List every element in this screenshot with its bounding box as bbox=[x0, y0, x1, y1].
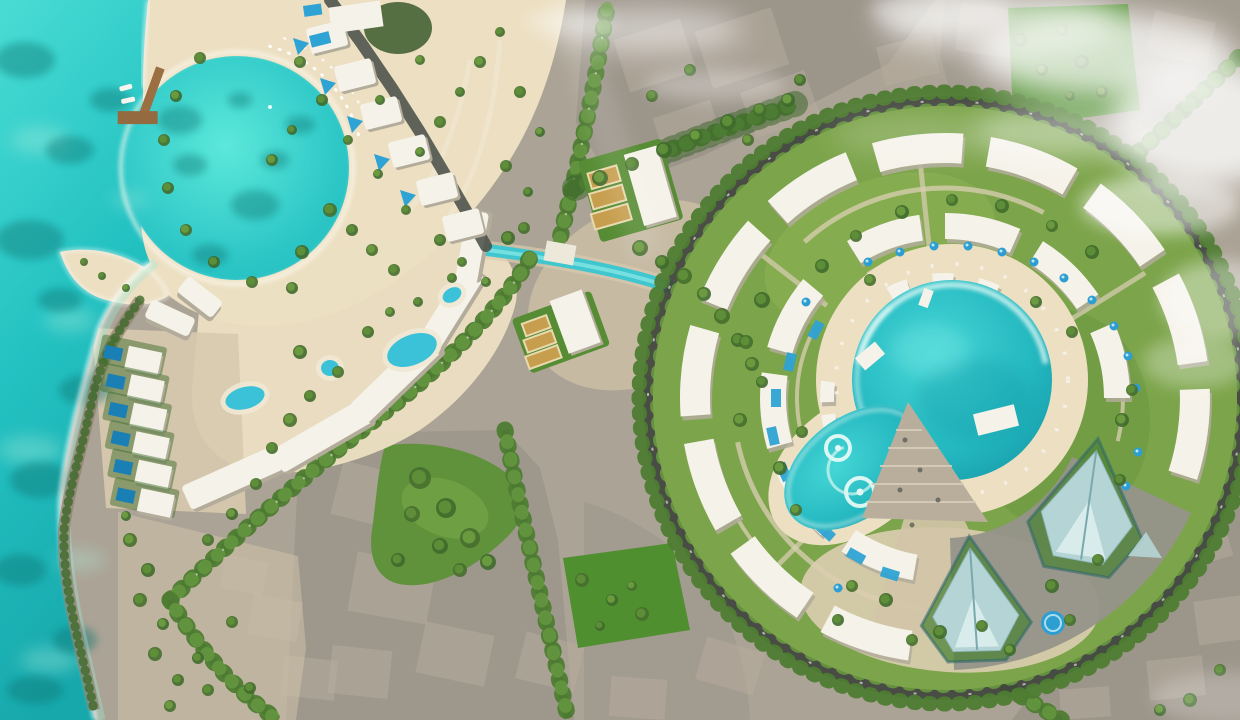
plot-patch bbox=[609, 676, 668, 720]
tree-crown bbox=[363, 327, 371, 335]
pier-platform bbox=[118, 111, 158, 124]
tree-crown bbox=[1115, 475, 1123, 483]
tree-crown bbox=[865, 275, 873, 283]
tree-crown bbox=[389, 265, 397, 273]
tree-crown bbox=[251, 479, 259, 487]
arc-building bbox=[1102, 328, 1117, 398]
tree-crown bbox=[247, 277, 255, 285]
tree-crown bbox=[193, 653, 201, 661]
tree-crown bbox=[181, 225, 189, 233]
umbrella-top bbox=[866, 260, 869, 263]
tree-crown bbox=[435, 117, 443, 125]
tree-crown bbox=[165, 701, 173, 709]
tree-crown bbox=[288, 126, 295, 133]
shallow-water-streak bbox=[44, 308, 96, 332]
tree-crown bbox=[294, 346, 303, 355]
tree-crown bbox=[454, 564, 463, 573]
tree-crown bbox=[1005, 645, 1013, 653]
tree-crown bbox=[1215, 665, 1223, 673]
tree-crown bbox=[458, 258, 465, 265]
tree-crown bbox=[576, 574, 585, 583]
tree-crown bbox=[482, 556, 492, 566]
boat bbox=[268, 105, 272, 109]
tree-crown bbox=[1067, 327, 1075, 335]
tree-crown bbox=[656, 256, 665, 265]
tree-crown bbox=[173, 675, 181, 683]
tree-crown bbox=[847, 581, 855, 589]
tree-crown bbox=[267, 155, 275, 163]
tree-crown bbox=[782, 94, 791, 103]
tree-crown bbox=[284, 414, 293, 423]
tree-crown bbox=[1046, 580, 1055, 589]
arc-building bbox=[945, 226, 1015, 241]
tree-crown bbox=[344, 136, 351, 143]
tree-crown bbox=[795, 75, 803, 83]
tree-crown bbox=[203, 535, 211, 543]
reef-patch bbox=[46, 136, 94, 164]
tree-crown bbox=[636, 608, 645, 617]
tree-crown bbox=[519, 223, 527, 231]
tree-crown bbox=[907, 635, 915, 643]
lagoon-bay bbox=[125, 56, 349, 280]
umbrella-top bbox=[1126, 354, 1129, 357]
tree-crown bbox=[209, 257, 217, 265]
tree-crown bbox=[158, 619, 166, 627]
tree-crown bbox=[163, 183, 171, 191]
tree-crown bbox=[596, 622, 603, 629]
tree-crown bbox=[295, 57, 303, 65]
umbrella-top bbox=[1090, 298, 1093, 301]
tree-crown bbox=[475, 57, 483, 65]
tree-crown bbox=[774, 462, 783, 471]
reef-patch bbox=[158, 106, 202, 134]
tree-crown bbox=[347, 225, 355, 233]
tree-crown bbox=[797, 427, 805, 435]
tree-crown bbox=[149, 648, 158, 657]
tree-crown bbox=[122, 284, 127, 289]
arc-building bbox=[827, 382, 828, 403]
reef-patch bbox=[7, 676, 63, 704]
tree-crown bbox=[317, 95, 325, 103]
tree-crown bbox=[376, 96, 383, 103]
tree-crown bbox=[658, 144, 668, 154]
tree-crown bbox=[374, 170, 381, 177]
tree-crown bbox=[324, 204, 333, 213]
tree-crown bbox=[757, 377, 765, 385]
tree-crown bbox=[122, 512, 129, 519]
plot-patch bbox=[328, 645, 393, 699]
tree-crown bbox=[448, 274, 455, 281]
umbrella-top bbox=[1000, 250, 1003, 253]
tree-crown bbox=[1086, 246, 1095, 255]
tree-crown bbox=[296, 246, 305, 255]
tree-crown bbox=[947, 195, 955, 203]
tree-crown bbox=[502, 232, 511, 241]
umbrella-top bbox=[966, 244, 969, 247]
tree-crown bbox=[896, 206, 905, 215]
reef-patch bbox=[173, 154, 207, 176]
plot-patch bbox=[1193, 595, 1240, 646]
tree-crown bbox=[80, 258, 85, 263]
tree-crown bbox=[722, 116, 732, 126]
plaza-boulder bbox=[898, 488, 903, 493]
shallow-water-streak bbox=[112, 192, 148, 208]
tree-crown bbox=[536, 128, 543, 135]
tree-crown bbox=[439, 501, 452, 514]
tree-crown bbox=[1047, 221, 1055, 229]
tree-crown bbox=[416, 56, 423, 63]
plaza-boulder bbox=[936, 498, 941, 503]
tree-crown bbox=[628, 582, 635, 589]
tree-crown bbox=[743, 135, 751, 143]
tree-crown bbox=[414, 298, 421, 305]
umbrella-top bbox=[1112, 324, 1115, 327]
tree-crown bbox=[734, 414, 743, 423]
umbrella-top bbox=[932, 244, 935, 247]
tree-crown bbox=[501, 161, 509, 169]
tree-crown bbox=[716, 310, 726, 320]
umbrella-top bbox=[836, 586, 839, 589]
scene-canvas bbox=[0, 0, 1240, 720]
pool-shimmer bbox=[890, 324, 970, 376]
tree-crown bbox=[195, 53, 203, 61]
tree-crown bbox=[496, 28, 503, 35]
tree-crown bbox=[791, 505, 799, 513]
tree-crown bbox=[435, 235, 443, 243]
tree-crown bbox=[134, 594, 143, 603]
tree-crown bbox=[1065, 615, 1073, 623]
tree-crown bbox=[386, 308, 393, 315]
tree-crown bbox=[267, 443, 275, 451]
tree-crown bbox=[203, 685, 211, 693]
plaza-boulder bbox=[918, 468, 923, 473]
tree-crown bbox=[333, 367, 341, 375]
tree-crown bbox=[124, 534, 133, 543]
tree-crown bbox=[171, 91, 179, 99]
arc-building bbox=[1183, 389, 1195, 475]
tree-crown bbox=[482, 278, 489, 285]
arc-building bbox=[695, 329, 705, 415]
tree-crown bbox=[142, 564, 151, 573]
tree-crown bbox=[524, 188, 531, 195]
tree-crown bbox=[456, 88, 463, 95]
tree-crown bbox=[1116, 414, 1125, 423]
tree-crown bbox=[851, 231, 859, 239]
tree-crown bbox=[1127, 385, 1135, 393]
umbrella-top bbox=[1032, 260, 1035, 263]
tree-crown bbox=[402, 206, 409, 213]
tree-crown bbox=[756, 294, 766, 304]
reef-patch bbox=[231, 190, 279, 220]
plaza-boulder bbox=[910, 523, 915, 528]
umbrella-top bbox=[898, 250, 901, 253]
tree-crown bbox=[934, 626, 943, 635]
tree-crown bbox=[754, 104, 763, 113]
tree-crown bbox=[678, 270, 688, 280]
tree-crown bbox=[159, 135, 167, 143]
umbrella-top bbox=[1136, 450, 1139, 453]
tree-crown bbox=[1031, 297, 1039, 305]
tree-crown bbox=[434, 540, 444, 550]
cloud bbox=[830, 115, 1010, 155]
umbrella-top bbox=[804, 300, 807, 303]
tree-crown bbox=[607, 595, 615, 603]
tree-crown bbox=[1093, 555, 1101, 563]
umbrella-top bbox=[1062, 276, 1065, 279]
tree-crown bbox=[98, 272, 103, 277]
tree-crown bbox=[463, 531, 476, 544]
tree-crown bbox=[515, 87, 523, 95]
tree-crown bbox=[690, 130, 699, 139]
tree-crown bbox=[227, 509, 235, 517]
green-parcel-south bbox=[563, 543, 690, 648]
tree-crown bbox=[416, 148, 423, 155]
tree-crown bbox=[367, 245, 375, 253]
plaza-boulder bbox=[903, 438, 908, 443]
reef-patch bbox=[38, 288, 82, 312]
tree-crown bbox=[245, 683, 253, 691]
cloud bbox=[1080, 175, 1240, 235]
cloud bbox=[525, 10, 615, 34]
tree-crown bbox=[305, 391, 313, 399]
tree-crown bbox=[977, 621, 985, 629]
cabana-pool bbox=[771, 389, 781, 407]
tree-crown bbox=[287, 283, 295, 291]
tree-crown bbox=[227, 617, 235, 625]
tree-crown bbox=[833, 615, 841, 623]
tree-crown bbox=[698, 288, 707, 297]
tree-crown bbox=[996, 200, 1005, 209]
shallow-water-streak bbox=[0, 436, 62, 464]
tree-crown bbox=[412, 470, 426, 484]
tree-crown bbox=[880, 594, 889, 603]
resort-masterplan-aerial-render bbox=[0, 0, 1240, 720]
tree-crown bbox=[746, 358, 755, 367]
reef-patch bbox=[228, 92, 252, 108]
cloud bbox=[645, 69, 785, 101]
tree-crown bbox=[392, 554, 401, 563]
tree-crown bbox=[740, 336, 749, 345]
tree-crown bbox=[816, 260, 825, 269]
tree-crown bbox=[406, 508, 416, 518]
